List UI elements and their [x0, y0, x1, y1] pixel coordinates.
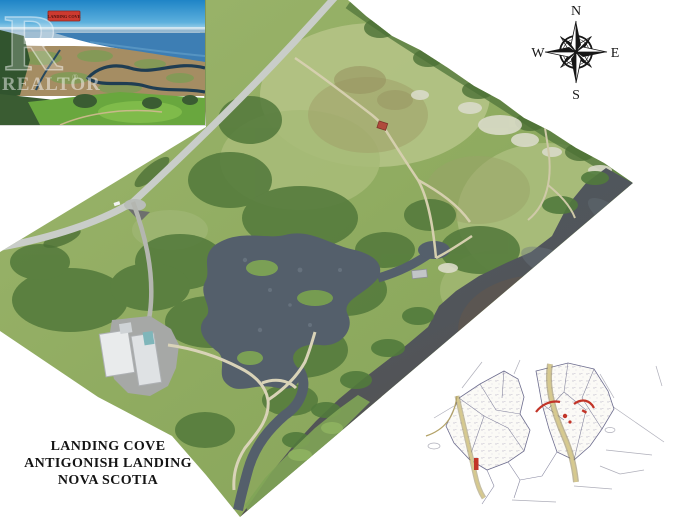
title-line-2: ANTIGONISH LANDING [10, 455, 206, 472]
listing-collage: LANDING COVE R REALTOR ® [0, 0, 674, 517]
property-title: LANDING COVE ANTIGONISH LANDING NOVA SCO… [10, 438, 206, 489]
registered-symbol: ® [72, 73, 78, 82]
compass-north-label: N [571, 4, 581, 19]
compass-west-label: W [531, 46, 545, 61]
compass-east-label: E [611, 46, 620, 61]
subdivision-site-plan [424, 358, 674, 517]
watermark-text: REALTOR [2, 74, 101, 95]
title-line-1: LANDING COVE [10, 438, 206, 455]
compass-rose-icon: N E S W [531, 2, 623, 102]
title-line-3: NOVA SCOTIA [10, 472, 206, 489]
inset-aerial-photo: LANDING COVE R REALTOR ® [0, 0, 205, 125]
teal-shed [143, 331, 155, 345]
pond-building [412, 269, 428, 279]
compass-south-label: S [572, 88, 580, 102]
